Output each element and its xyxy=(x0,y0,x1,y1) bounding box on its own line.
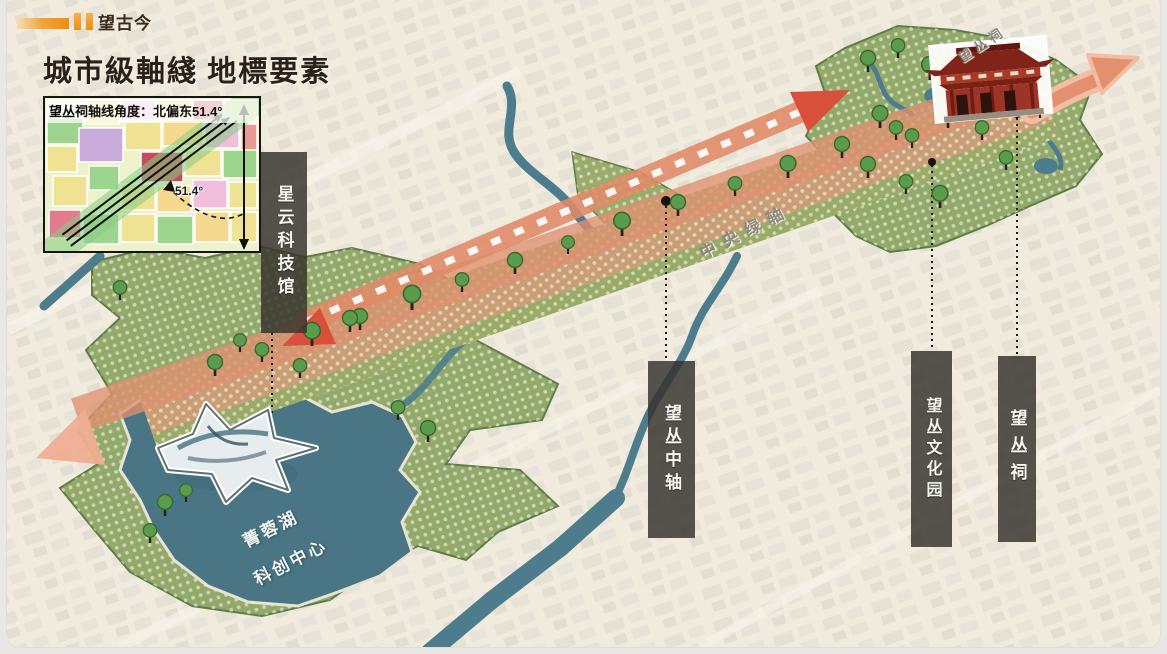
landmark-bar-science-museum: 星云科技馆 xyxy=(261,152,307,333)
presentation-slide: 望古今 城市級軸綫 地標要素 xyxy=(0,0,1167,654)
header-tick-bar xyxy=(86,13,93,30)
header-gradient-bar xyxy=(17,18,69,29)
slide-header: 望古今 xyxy=(17,9,152,34)
inset-caption: 望丛祠轴线角度：北偏东51.4° xyxy=(46,99,258,123)
landmark-bar-temple: 望丛祠 xyxy=(998,356,1036,542)
landmark-bar-cultural-park: 望丛文化园 xyxy=(911,351,952,547)
slide-canvas: 望古今 城市級軸綫 地標要素 xyxy=(7,0,1160,647)
axis-angle-inset-map: 望丛祠轴线角度：北偏东51.4° 51.4° xyxy=(43,96,261,253)
page-title: 城市級軸綫 地標要素 xyxy=(43,48,331,90)
section-label: 望古今 xyxy=(98,9,152,34)
header-tick-bar xyxy=(74,13,81,30)
inset-angle-value: 51.4° xyxy=(175,184,203,198)
landmark-bar-central-axis: 望丛中轴 xyxy=(648,361,695,538)
